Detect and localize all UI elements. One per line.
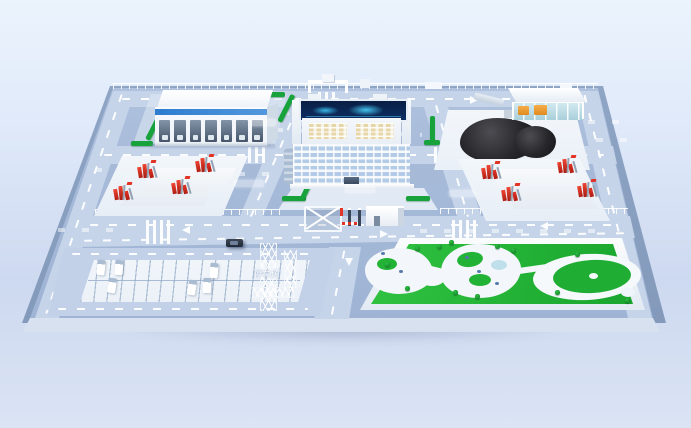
dock-door [190,120,201,142]
plaza-center-dot [589,273,598,279]
lattice-tower [284,250,297,288]
penthouse-level [302,118,401,144]
tree [495,244,500,249]
office-floors [293,144,410,184]
dock-door [159,120,170,142]
screen-glow [312,106,339,116]
orange-machine [518,106,529,115]
sculpture-dot [399,270,403,273]
tree [625,298,630,303]
shed-post [512,102,514,119]
equipment-rig [500,183,522,201]
screen-glow [306,116,401,118]
orange-machine [534,105,547,115]
gate-post [358,208,361,226]
equipment-rig [576,179,598,197]
pavement-ticks [58,228,128,232]
dock-door [205,120,216,142]
garden-pond [491,260,507,270]
tree [453,290,458,295]
tree [405,286,410,291]
tree [475,294,480,299]
entrance-door [344,177,358,184]
tree [437,244,442,249]
screen-glow [348,104,384,116]
equipment-yard-left[interactable] [90,150,255,225]
equipment-rig [170,176,192,194]
hedge [131,141,153,146]
parking-lot-area[interactable] [48,234,343,330]
road-arrow [182,226,190,234]
tree [511,248,516,253]
campus-3d-scene: 停车场 [0,0,691,428]
conveyor-machine [474,92,505,106]
dock-door [236,120,247,142]
truck [203,278,212,293]
road-label [449,190,475,197]
equipment-rig [556,155,578,173]
blue-stripe [155,109,267,115]
garden-park[interactable] [345,230,691,325]
car-windshield [230,241,238,245]
road-label [234,180,264,187]
tree [575,252,580,257]
shed-post [582,102,584,119]
plaza-pond [621,288,635,297]
entrance-gate[interactable] [300,198,412,234]
sculpture-dot [495,282,499,285]
equipment-rig [194,154,216,172]
tree [385,262,390,267]
sculpture-dot [465,256,469,259]
equipment-rig [112,182,134,200]
green-island [469,274,491,286]
sculpture-dot [477,270,481,273]
warehouse-front-face [155,107,267,146]
road-label [345,186,375,193]
office-building[interactable] [278,92,448,214]
tree [555,290,560,295]
office-side-face [284,146,293,186]
equipment-rig [136,160,158,178]
guard-house-door [374,216,380,226]
truck [96,260,106,276]
north-structure [322,74,334,82]
warehouse-roof [157,90,273,108]
dock-door [174,120,185,142]
road-label [250,119,276,126]
car [226,239,243,247]
truck [114,260,123,276]
parking-lot-label: 停车场 [254,270,280,279]
guard-house [366,208,404,226]
penthouse-windows [356,123,394,139]
tree [415,246,420,251]
tree [449,240,454,245]
loading-dock-row [159,120,263,142]
sculpture-dot [381,252,385,255]
shed-roof [508,88,586,102]
truck [209,263,218,279]
pavement-ticks [596,138,636,142]
lattice-truss [252,287,294,298]
canopy-shed [502,88,594,132]
north-structure [360,79,370,88]
equipment-rig [480,161,502,179]
gate-red-light [340,208,343,216]
guard-house-side [398,208,404,226]
penthouse-windows [309,123,347,139]
barrier-arm [342,222,358,225]
dock-door [221,120,232,142]
gate-frame [304,206,342,232]
warehouse-ground-shadow [151,144,275,148]
